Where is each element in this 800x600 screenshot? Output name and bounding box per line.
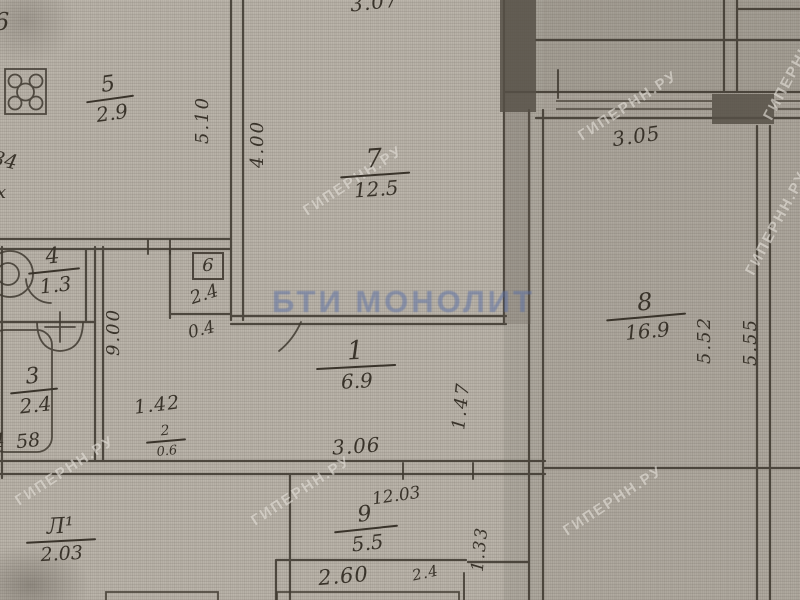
dim-room7-height: 4.00 [247,90,268,168]
room-label-2: 2 0.6 [145,422,188,459]
dim-room5-height: 5.10 [192,68,213,144]
fragment-top-left: 6 [0,8,9,36]
room-number: 1 [315,336,396,366]
room-number: 2 [145,422,186,439]
room-number: Л¹ [25,514,96,540]
room-area: 6.9 [316,369,397,393]
pier-top-middle [500,0,536,112]
room-number: 4 [26,243,80,270]
dim-room8-outer: 5.55 [740,248,761,366]
room-label-9: 9 5.5 [332,501,401,556]
vent-shaft-icon [5,69,46,114]
room-label-5: 5 2.9 [83,71,137,126]
room-number: 7 [338,144,410,175]
fragment-left-lower: 4 [0,428,5,452]
dim-kitchen-width: 2.60 [317,562,370,590]
room-area: 2.03 [26,543,97,566]
room-label-6-box: 6 [192,252,224,280]
wall-piers [500,0,774,324]
dim-hall-wall: 9.00 [103,268,124,356]
floor-plan-scan: ГИПЕРНН.РУ ГИПЕРНН.РУ ГИПЕРНН.РУ ГИПЕРНН… [0,0,800,600]
fragment-left-mid: х [0,182,6,203]
dim-corridor-width: 3.06 [331,432,381,459]
balcony-label: Л¹ 2.03 [25,514,97,566]
room-3-note: 58 [15,429,41,453]
balcony-outline [106,592,459,600]
room-number: 6 [202,255,213,276]
room-number: 3 [8,364,58,391]
room-label-1: 1 6.9 [315,336,398,393]
room-label-7: 7 12.5 [338,144,412,202]
dim-room8-inner: 5.52 [694,252,715,364]
room-label-4: 4 1.3 [26,243,83,297]
watermark-blue: БТИ МОНОЛИТ [272,284,535,320]
room-label-3-bath: 3 2.4 [8,364,61,418]
room-label-8: 8 16.9 [604,287,688,345]
